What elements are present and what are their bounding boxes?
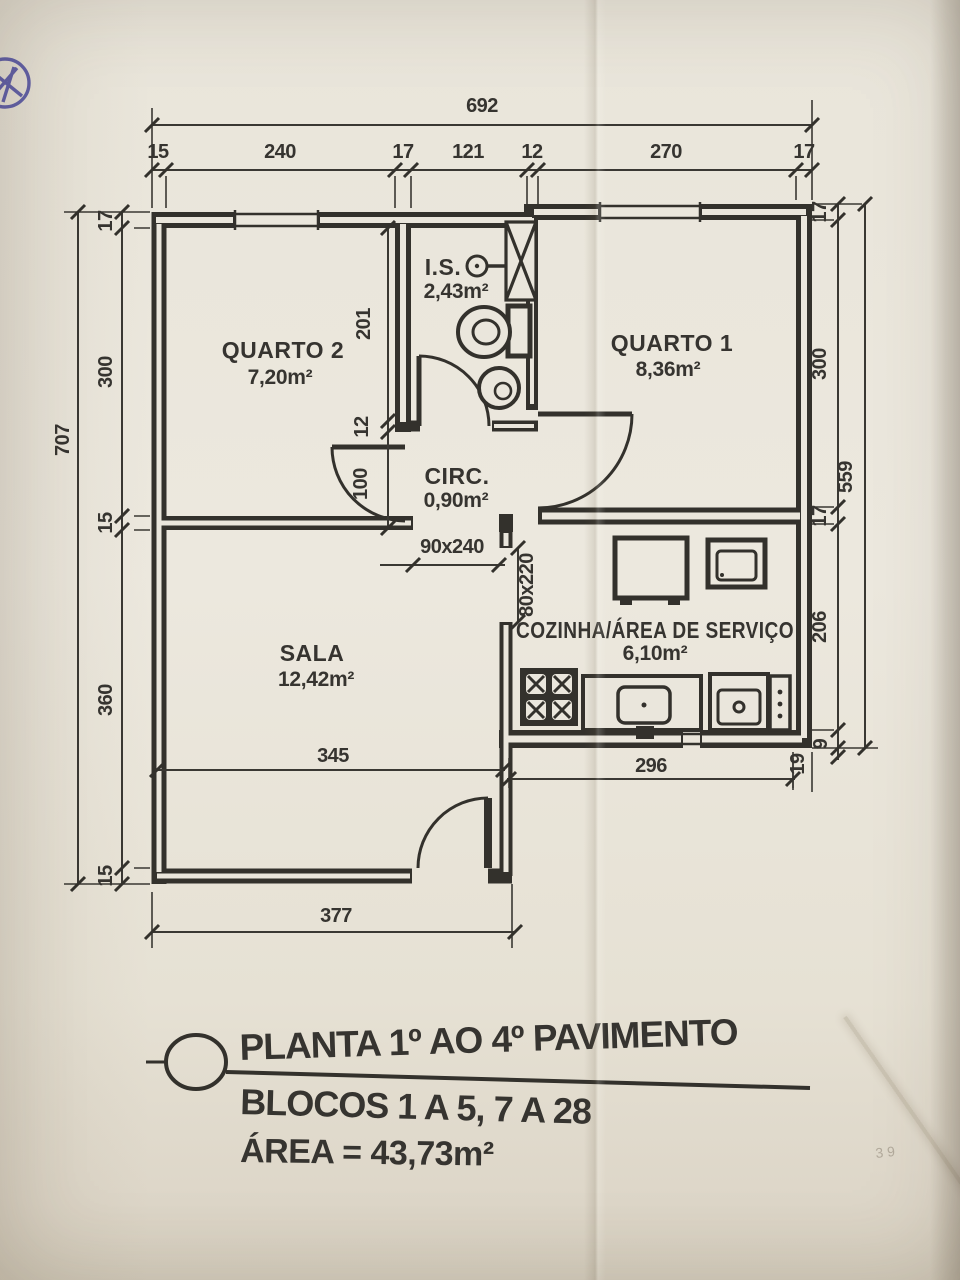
photo-vignette — [0, 0, 960, 1280]
scanned-floor-plan-page: 692 15 240 17 121 12 270 17 707 17 300 1… — [0, 0, 960, 1280]
